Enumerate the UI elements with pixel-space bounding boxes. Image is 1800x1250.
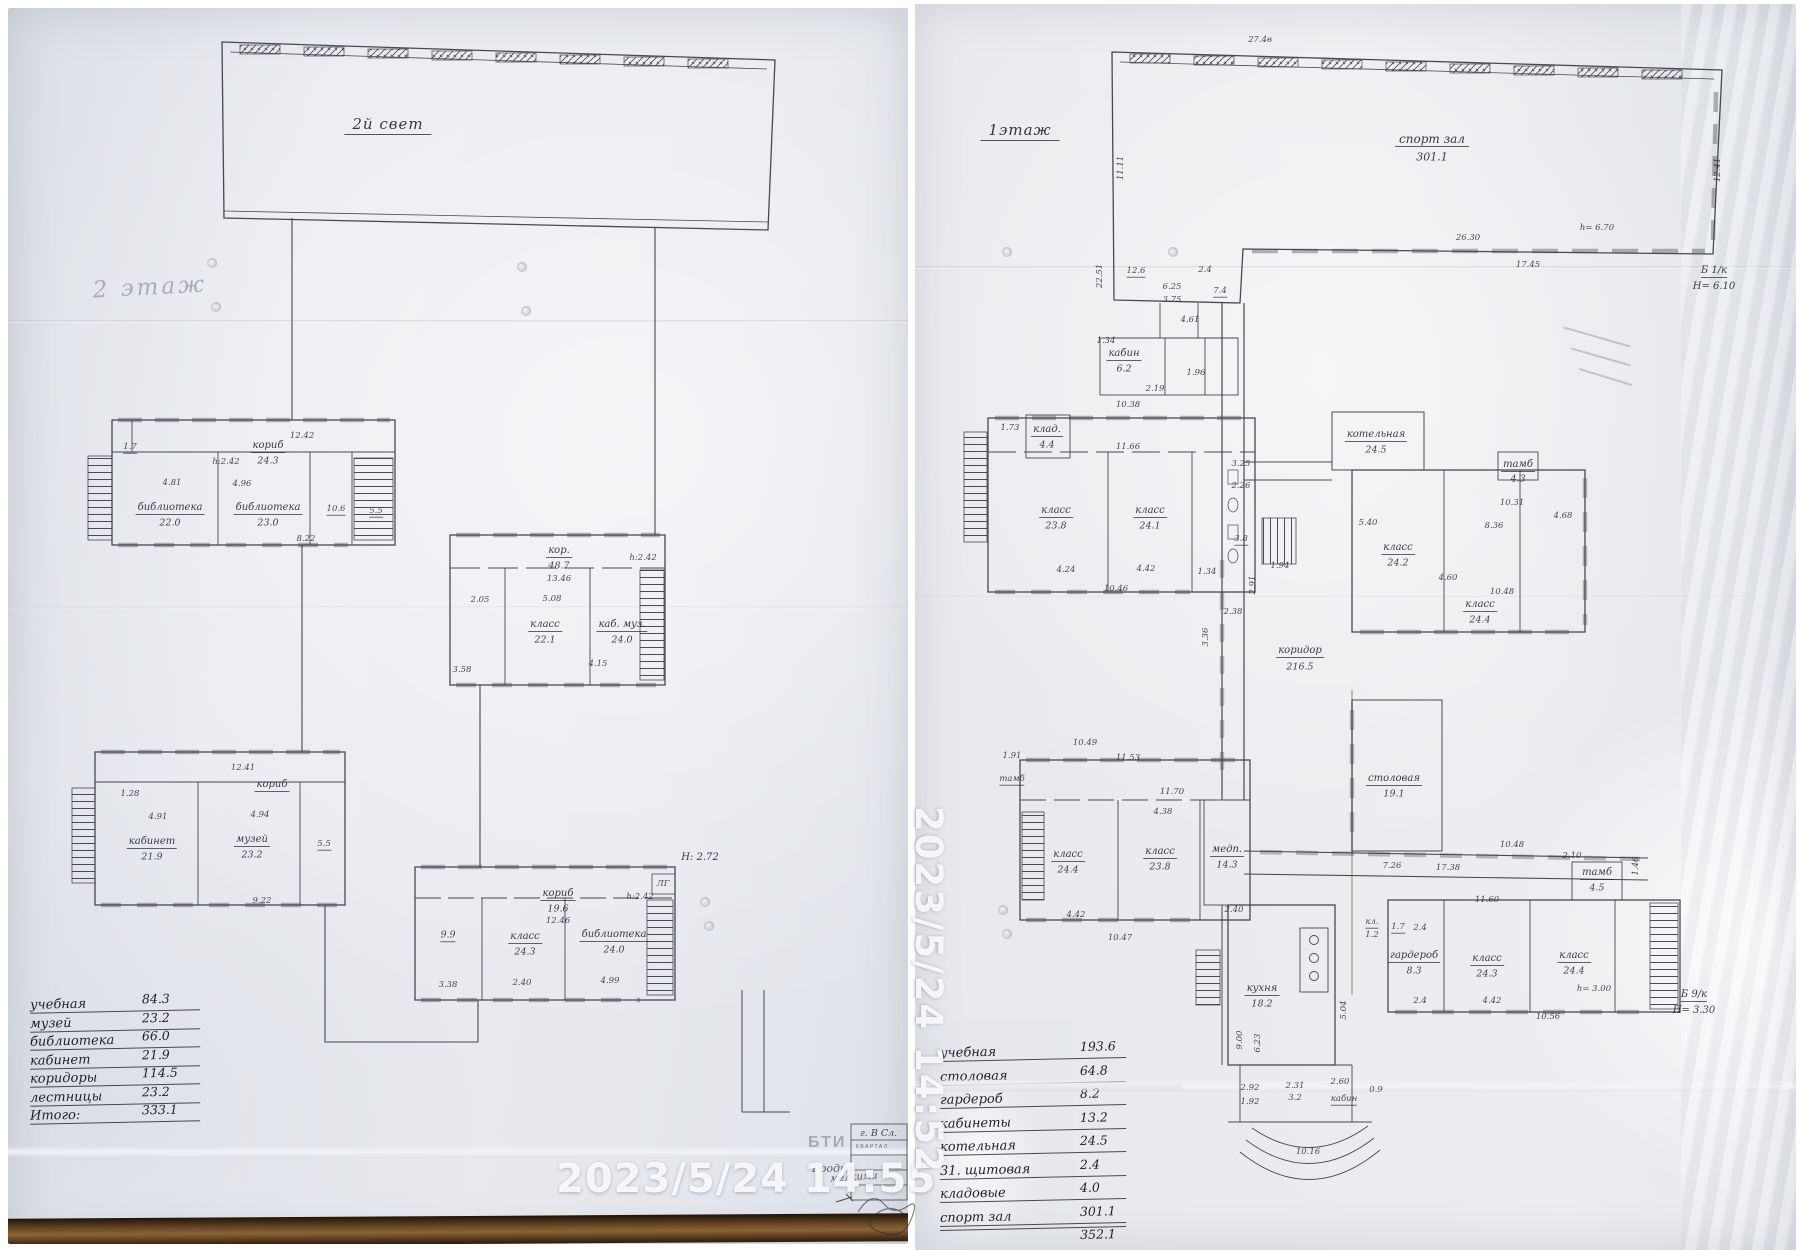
plan-annotation: h= 6.70 — [1580, 224, 1614, 233]
plan-annotation: 9.00 — [1236, 1031, 1245, 1050]
plan-annotation: 2.4 — [1198, 266, 1212, 275]
plan-annotation: 2.19 — [1146, 385, 1165, 394]
plan-annotation: кл. — [1365, 918, 1378, 929]
plan-annotation: 22.51 — [1096, 264, 1105, 288]
plan-annotation: 7.4 — [1213, 287, 1227, 298]
plan-annotation: 1.7 — [1391, 923, 1405, 934]
plan-annotation: Б 1/к — [1701, 266, 1727, 278]
timestamp-watermark-left: 2023/5/24 14:55 — [556, 1156, 936, 1202]
legend-value: 13.2 — [1080, 1109, 1108, 1125]
plan-annotation: гардероб — [1388, 951, 1440, 963]
plan-annotation: 6.23 — [1254, 1034, 1263, 1053]
plan-annotation: 24.3 — [1476, 969, 1497, 979]
plan-annotation: 3.8 — [1234, 535, 1248, 546]
plan-annotation: 1.34 — [1097, 337, 1116, 346]
plan-annotation: 23.8 — [1045, 521, 1066, 531]
plan-annotation: 17.38 — [1436, 864, 1460, 873]
legend-label: Итого: — [30, 1108, 81, 1124]
plan-annotation: 1этаж — [980, 123, 1059, 141]
legend-value: 66.0 — [142, 1028, 170, 1044]
right-plan-annotations: 1этажспорт зал301.127.4в11.1122.5112.412… — [0, 0, 1800, 1250]
plan-annotation: столовая — [1366, 774, 1422, 786]
plan-annotation: 12.41 — [1714, 158, 1723, 182]
legend-value: 352.1 — [1080, 1226, 1116, 1242]
right-plan-area-legend: учебная193.6столовая64.8гардероб8.2кабин… — [940, 1040, 1150, 1250]
plan-annotation: 2.92 — [1241, 1084, 1260, 1093]
plan-annotation: 11.66 — [1116, 443, 1140, 452]
plan-annotation: 2.40 — [1225, 906, 1244, 915]
plan-annotation: медп. — [1210, 845, 1244, 857]
plan-annotation: 19.1 — [1383, 789, 1404, 799]
plan-annotation: 10.48 — [1490, 588, 1514, 597]
plan-annotation: класс — [1470, 954, 1504, 966]
legend-value: 2.4 — [1080, 1156, 1100, 1171]
plan-annotation: 18.2 — [1251, 999, 1272, 1009]
plan-annotation: котельная — [1345, 430, 1407, 442]
legend-value: 23.2 — [142, 1083, 170, 1099]
plan-annotation: 4.61 — [1181, 316, 1200, 325]
plan-annotation: класс — [1143, 847, 1177, 859]
plan-annotation: 10.56 — [1536, 1013, 1560, 1022]
plan-annotation: 2.10 — [1563, 852, 1582, 861]
plan-annotation: 301.1 — [1416, 152, 1448, 163]
legend-row: кабинеты13.2 — [940, 1109, 1126, 1133]
photo-collage-canvas: 2й свет2 этажкориб24.312.42h:2.421.74.81… — [0, 0, 1800, 1250]
stamp-table-text: КВАРТАЛ — [856, 1144, 889, 1150]
plan-annotation: 0.9 — [1369, 1086, 1383, 1095]
legend-value: 21.9 — [142, 1046, 170, 1062]
plan-annotation: 14.3 — [1216, 860, 1237, 870]
plan-annotation: 2.26 — [1232, 482, 1251, 491]
plan-annotation: 10.38 — [1116, 401, 1140, 410]
stamp-org-label: БТИ — [808, 1134, 846, 1152]
legend-label: 31. щитовая — [940, 1162, 1031, 1179]
plan-annotation: 2.60 — [1331, 1078, 1350, 1087]
plan-annotation: кабин — [1331, 1095, 1357, 1106]
plan-annotation: тамб — [1501, 460, 1535, 472]
plan-annotation: 23.8 — [1149, 862, 1170, 872]
plan-annotation: 4.68 — [1554, 512, 1573, 521]
plan-annotation: 24.4 — [1057, 865, 1078, 875]
plan-annotation: 1.94 — [1271, 562, 1290, 571]
plan-annotation: 24.4 — [1469, 615, 1490, 625]
plan-annotation: клад. — [1031, 425, 1063, 437]
plan-annotation: 10.47 — [1108, 934, 1132, 943]
plan-annotation: тамб — [1580, 868, 1614, 880]
plan-annotation: кухня — [1245, 984, 1280, 996]
legend-value: 301.1 — [1080, 1203, 1116, 1219]
plan-annotation: тамб — [999, 775, 1024, 786]
plan-annotation: 17.45 — [1516, 261, 1540, 270]
legend-value: 114.5 — [142, 1065, 178, 1081]
timestamp-watermark-right: 2023/5/24 14:52 — [907, 806, 950, 1174]
plan-annotation: 11.70 — [1160, 788, 1184, 797]
legend-row: спорт зал301.1 — [940, 1203, 1126, 1227]
legend-label: музей — [30, 1015, 72, 1031]
legend-value: 4.0 — [1080, 1180, 1100, 1195]
plan-annotation: 6.25 — [1163, 283, 1182, 292]
plan-annotation: 26.30 — [1456, 234, 1480, 243]
legend-value: 24.5 — [1080, 1132, 1108, 1148]
plan-annotation: 7.26 — [1383, 862, 1402, 871]
plan-annotation: 216.5 — [1286, 662, 1313, 672]
legend-row: кладовые4.0 — [940, 1179, 1126, 1203]
legend-row: 31. щитовая2.4 — [940, 1156, 1126, 1180]
plan-annotation: 1.96 — [1187, 369, 1206, 378]
plan-annotation: 10.46 — [1104, 585, 1128, 594]
legend-value: 23.2 — [142, 1009, 170, 1025]
plan-annotation: кабин — [1106, 349, 1141, 361]
legend-label: спорт зал — [940, 1209, 1012, 1225]
plan-annotation: 4.42 — [1483, 997, 1502, 1006]
paper-fold — [922, 1078, 1182, 1091]
plan-annotation: 24.2 — [1387, 558, 1408, 568]
plan-annotation: 5.40 — [1359, 519, 1378, 528]
plan-annotation: 24.5 — [1365, 445, 1386, 455]
plan-annotation: 4.5 — [1589, 883, 1604, 893]
legend-row: котельная24.5 — [940, 1132, 1126, 1156]
plan-annotation: 4.38 — [1154, 808, 1173, 817]
plan-annotation: 1.34 — [1198, 568, 1217, 577]
plan-annotation: 11.60 — [1475, 896, 1499, 905]
legend-value: 64.8 — [1080, 1062, 1108, 1078]
plan-annotation: 4.42 — [1067, 911, 1086, 920]
plan-annotation: 1.92 — [1241, 1098, 1260, 1107]
plan-annotation: 10.49 — [1073, 739, 1097, 748]
plan-annotation: 2.31 — [1286, 1082, 1305, 1091]
plan-annotation: Б 9/к — [1681, 990, 1707, 1002]
plan-annotation: 27.4в — [1248, 36, 1272, 45]
plan-annotation: 8.3 — [1406, 966, 1421, 976]
plan-annotation: класс — [1381, 543, 1415, 555]
plan-annotation: 8.36 — [1485, 522, 1504, 531]
plan-annotation: Н= 3.30 — [1673, 1006, 1716, 1016]
plan-annotation: класс — [1039, 506, 1073, 518]
plan-annotation: 4.4 — [1039, 440, 1054, 450]
plan-annotation: 5.04 — [1340, 1001, 1349, 1020]
plan-annotation: 1.73 — [1001, 424, 1020, 433]
legend-label: кладовые — [940, 1186, 1006, 1202]
legend-label: кабинеты — [940, 1115, 1011, 1131]
plan-annotation: 2.4 — [1413, 924, 1427, 933]
left-plan-area-legend: учебная84.3музей23.2библиотека66.0кабине… — [30, 992, 230, 1142]
plan-annotation: 1.46 — [1632, 857, 1641, 876]
plan-annotation: Н= 6.10 — [1693, 282, 1736, 292]
plan-annotation: 11.53 — [1116, 754, 1140, 763]
plan-annotation: 2.91 — [1249, 576, 1258, 595]
legend-label: учебная — [30, 997, 86, 1013]
plan-annotation: 3.36 — [1202, 628, 1211, 647]
plan-annotation: 1.91 — [1003, 752, 1022, 761]
plan-annotation: класс — [1557, 951, 1591, 963]
plan-annotation: 24.4 — [1563, 966, 1584, 976]
plan-annotation: 3.2 — [1288, 1094, 1302, 1103]
plan-annotation: класс — [1133, 506, 1167, 518]
plan-annotation: 10.16 — [1296, 1148, 1320, 1157]
plan-annotation: 10.31 — [1500, 499, 1524, 508]
stamp-handwriting: г. В Сл. — [860, 1128, 897, 1139]
plan-annotation: 4.60 — [1439, 574, 1458, 583]
plan-annotation: 12.6 — [1127, 267, 1146, 278]
plan-annotation: 4.24 — [1057, 566, 1076, 575]
plan-annotation: 11.11 — [1117, 156, 1126, 180]
plan-annotation: коридор — [1276, 646, 1324, 658]
plan-annotation: 2.4 — [1413, 997, 1427, 1006]
plan-annotation: 1.2 — [1365, 931, 1379, 940]
plan-annotation: 3.25 — [1232, 460, 1251, 469]
plan-annotation: 4.42 — [1137, 565, 1156, 574]
plan-annotation: 24.1 — [1139, 521, 1160, 531]
legend-label: коридоры — [30, 1070, 98, 1086]
legend-value: 193.6 — [1080, 1038, 1116, 1054]
plan-annotation: 10.48 — [1500, 841, 1524, 850]
plan-annotation: h= 3.00 — [1577, 985, 1611, 994]
plan-annotation: спорт зал — [1395, 133, 1469, 147]
plan-annotation: 4.3 — [1510, 474, 1525, 484]
legend-label: библиотека — [30, 1033, 115, 1050]
plan-annotation: 3.75 — [1163, 296, 1182, 305]
legend-value: 84.3 — [142, 991, 170, 1007]
legend-row: Итого:333.1 — [30, 1101, 200, 1125]
legend-row: 352.1 — [940, 1226, 1126, 1231]
legend-row: учебная193.6 — [940, 1038, 1126, 1062]
plan-annotation: класс — [1051, 850, 1085, 862]
plan-annotation: класс — [1463, 600, 1497, 612]
legend-label: котельная — [940, 1138, 1016, 1155]
legend-value: 333.1 — [142, 1102, 178, 1118]
plan-annotation: 2.38 — [1224, 608, 1243, 617]
plan-annotation: 6.2 — [1116, 364, 1131, 374]
